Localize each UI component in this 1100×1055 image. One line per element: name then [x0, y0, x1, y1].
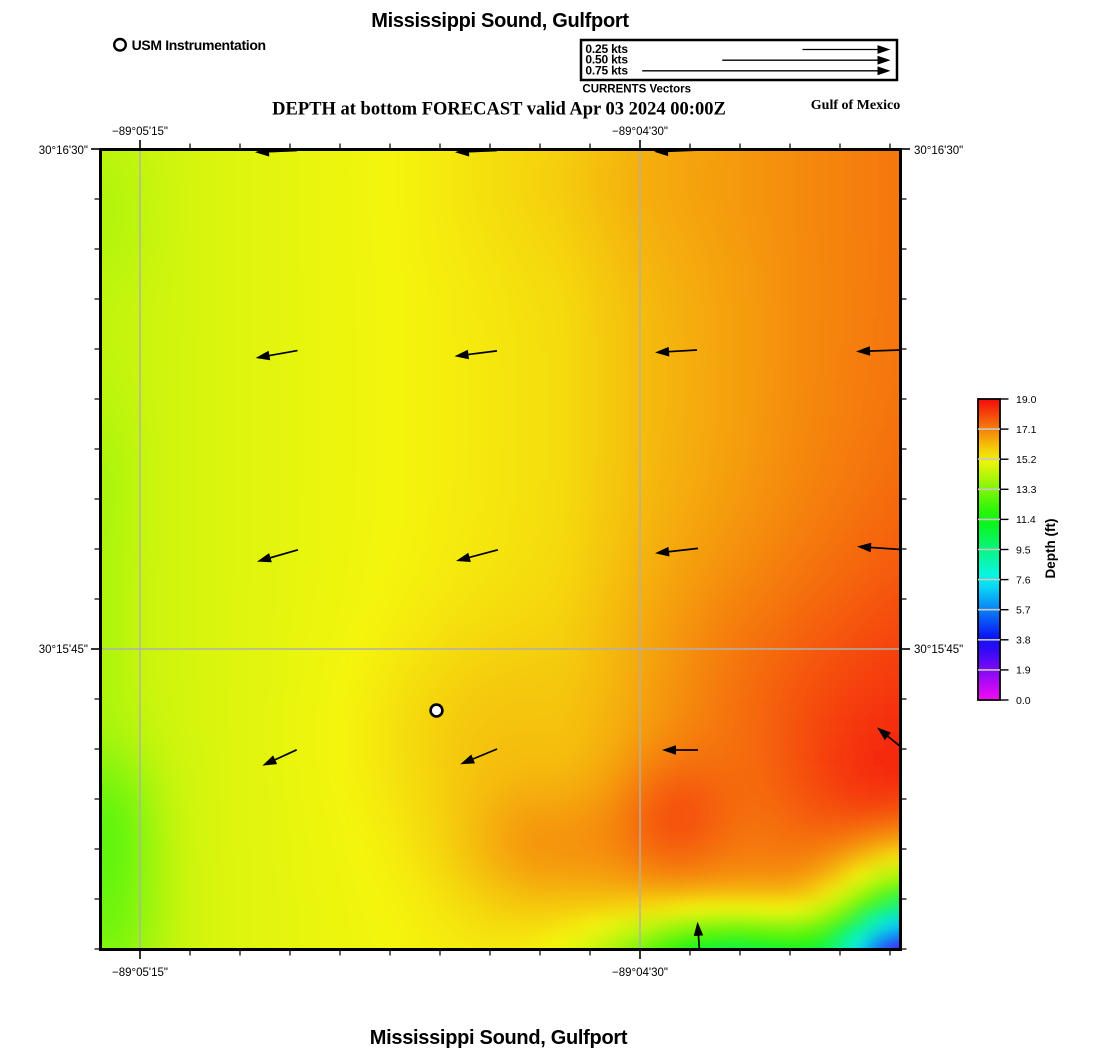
svg-text:5.7: 5.7: [1016, 605, 1031, 617]
svg-text:9.5: 9.5: [1016, 544, 1031, 556]
svg-text:30°15'45": 30°15'45": [39, 644, 88, 656]
svg-text:Mississippi Sound, Gulfport: Mississippi Sound, Gulfport: [370, 1027, 628, 1049]
svg-text:0.0: 0.0: [1016, 695, 1031, 707]
svg-text:−89°05'15": −89°05'15": [112, 967, 168, 979]
svg-text:30°15'45": 30°15'45": [914, 644, 963, 656]
svg-text:0.75 kts: 0.75 kts: [585, 63, 628, 77]
svg-text:3.8: 3.8: [1016, 635, 1031, 647]
svg-text:Gulf of Mexico: Gulf of Mexico: [811, 98, 900, 113]
svg-text:7.6: 7.6: [1016, 574, 1031, 586]
svg-text:DEPTH at bottom FORECAST valid: DEPTH at bottom FORECAST valid Apr 03 20…: [272, 100, 726, 120]
svg-text:Mississippi Sound, Gulfport: Mississippi Sound, Gulfport: [371, 10, 629, 32]
svg-text:11.4: 11.4: [1016, 514, 1036, 526]
svg-text:30°16'30": 30°16'30": [39, 145, 88, 157]
svg-text:19.0: 19.0: [1016, 394, 1037, 406]
svg-text:CURRENTS Vectors: CURRENTS Vectors: [582, 84, 691, 96]
svg-text:17.1: 17.1: [1016, 424, 1037, 436]
svg-text:15.2: 15.2: [1016, 454, 1037, 466]
svg-text:−89°04'30": −89°04'30": [612, 126, 668, 138]
svg-text:−89°04'30": −89°04'30": [612, 967, 668, 979]
svg-text:USM Instrumentation: USM Instrumentation: [132, 37, 266, 53]
svg-text:30°16'30": 30°16'30": [914, 145, 963, 157]
svg-text:13.3: 13.3: [1016, 484, 1037, 496]
svg-text:Depth (ft): Depth (ft): [1043, 519, 1058, 579]
svg-text:−89°05'15": −89°05'15": [112, 126, 168, 138]
svg-text:1.9: 1.9: [1016, 665, 1031, 677]
